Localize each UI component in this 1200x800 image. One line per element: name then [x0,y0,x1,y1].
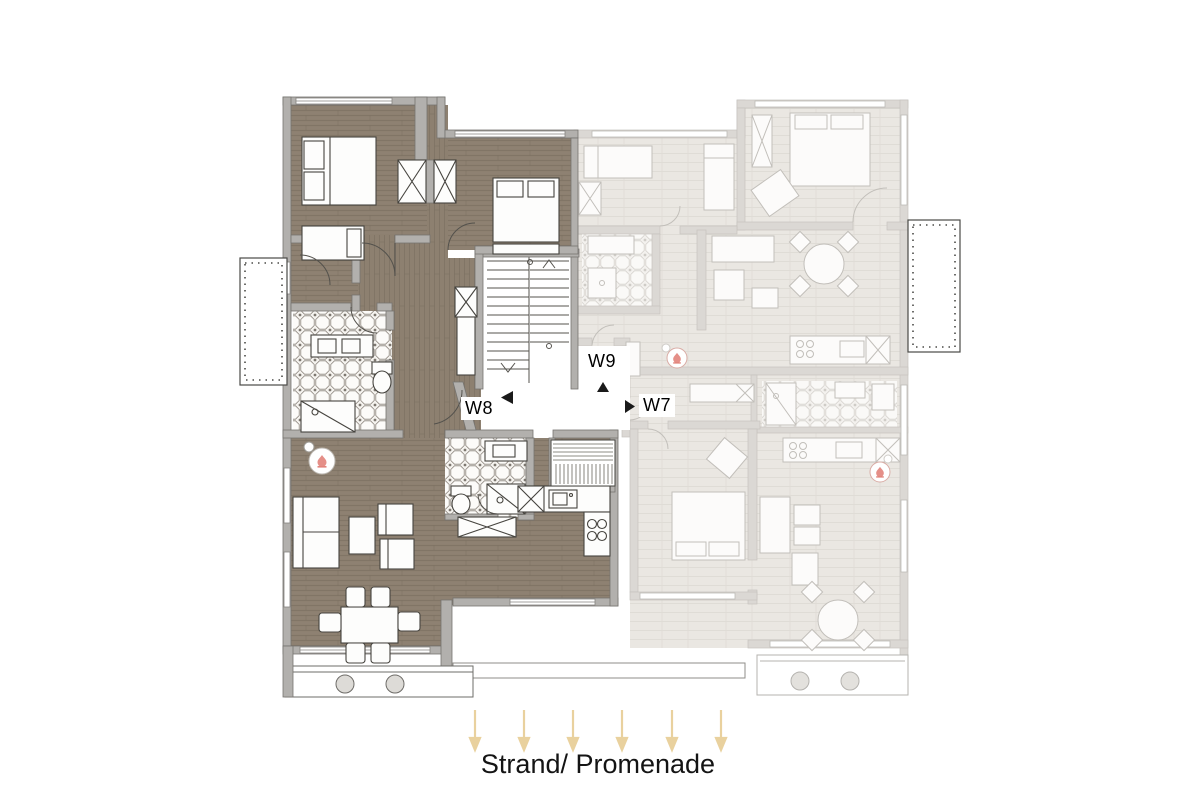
apartment-label-w8[interactable]: W8 [461,397,497,420]
down-arrow-icon [716,738,726,750]
stairwell [481,255,573,385]
armchair [378,504,413,535]
terrace-dotted-left [240,258,287,385]
down-arrow-icon [470,738,480,750]
floor-plan-page: W8 W9 W7 Strand/ Promenade [0,0,1200,800]
w7-balcony [757,655,908,695]
sauna [551,440,615,486]
terrace-dotted-right [908,220,960,352]
long-balcony [453,663,745,678]
dining-table [341,607,398,643]
coffee-table [349,517,375,554]
floor-plan-svg [0,0,1200,800]
apartment-label-w9[interactable]: W9 [584,350,620,373]
direction-arrows [470,710,726,750]
armchair [380,539,414,569]
apartment-label-w7[interactable]: W7 [639,394,675,417]
legend-caption: Strand/ Promenade [398,750,798,780]
